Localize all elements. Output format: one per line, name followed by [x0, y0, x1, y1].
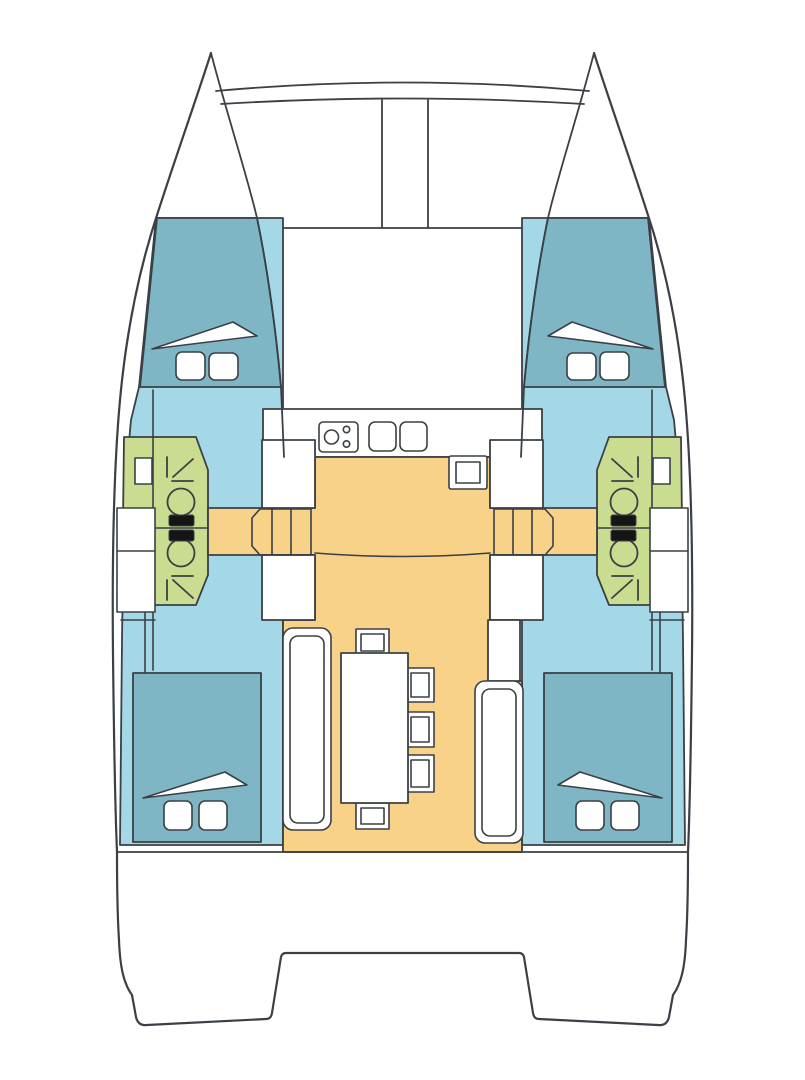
starboard-toilet-forward-seat: [611, 515, 636, 526]
plan-root: [113, 53, 692, 1025]
galley-sink-2: [400, 422, 427, 451]
nav-seat: [449, 456, 487, 489]
port-aft-cabin-bed: [133, 673, 261, 842]
starboard-forward-hatch-1: [600, 352, 629, 380]
chair-head-forward-cushion: [361, 634, 384, 651]
starboard-counter-block-forward: [490, 440, 543, 508]
galley-sink-1: [369, 422, 396, 451]
deck-plan-svg: [0, 0, 805, 1080]
starboard-forward-hatch-2: [567, 353, 596, 380]
starboard-aft-hatch-1: [576, 801, 604, 830]
chair-side-1-cushion: [411, 673, 429, 697]
forward-crossbeam-inner: [221, 99, 584, 105]
port-galley-block-aft: [262, 555, 315, 620]
starboard-toilet-aft-seat: [611, 530, 636, 541]
port-forward-hatch-1: [176, 352, 205, 380]
port-aft-hatch-2: [199, 801, 227, 830]
chair-side-3-cushion: [411, 760, 429, 787]
dining-table: [341, 653, 408, 803]
forward-crossbeam-outer: [216, 83, 589, 92]
port-toilet-forward-seat: [169, 515, 194, 526]
galley-appliances: [319, 422, 427, 452]
port-galley-block-forward: [262, 440, 315, 508]
starboard-side-locker: [650, 508, 688, 612]
port-toilet-aft-seat: [169, 530, 194, 541]
nav-seat-inner: [456, 462, 480, 483]
chair-head-aft-cushion: [361, 808, 384, 824]
port-forward-hatch-2: [209, 353, 238, 380]
bow-crossbeam-group: [216, 83, 589, 229]
port-side-locker: [117, 508, 155, 612]
starboard-counter-block-aft: [490, 555, 543, 620]
deck-plan-page: [0, 0, 805, 1080]
starboard-counter-block-lower: [488, 620, 520, 681]
chair-side-2-cushion: [411, 717, 429, 742]
starboard-aft-hatch-2: [611, 801, 639, 830]
port-aft-hatch-1: [164, 801, 192, 830]
port-head-sink-forward: [135, 458, 152, 484]
starboard-head-sink-forward: [653, 458, 670, 484]
starboard-aft-cabin-bed: [544, 673, 672, 842]
